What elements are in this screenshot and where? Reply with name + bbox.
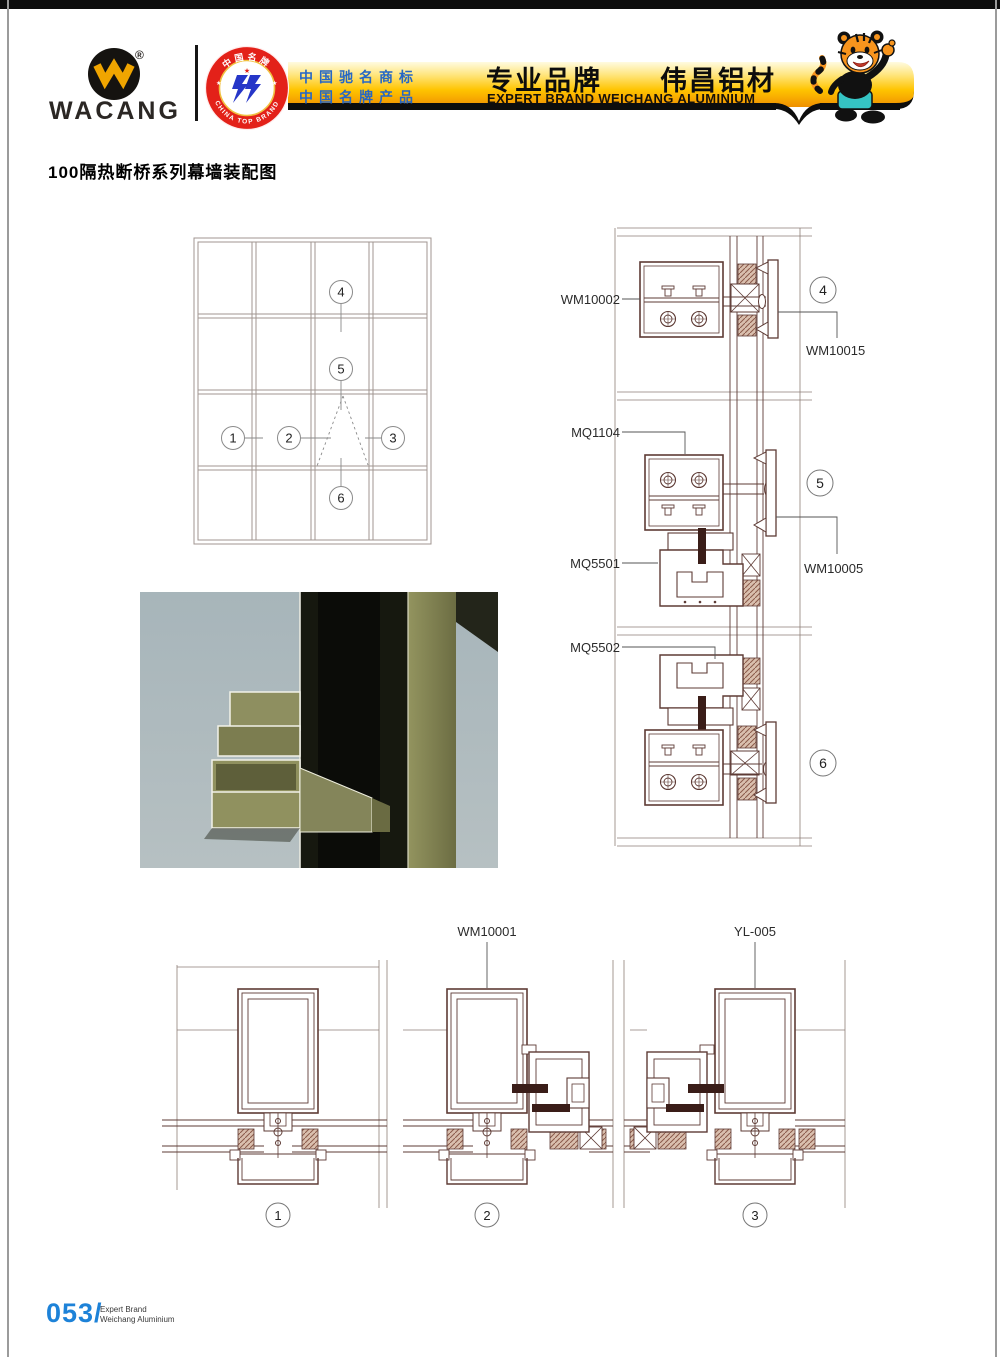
callout-detail-4: 4 bbox=[810, 277, 836, 303]
page-number: 053/ bbox=[46, 1298, 103, 1329]
trademark-lines: 中国驰名商标中国名牌产品 bbox=[299, 67, 419, 107]
label-wm10002: WM10002 bbox=[561, 292, 640, 307]
svg-text:5: 5 bbox=[337, 362, 344, 377]
brand-wordmark: WACANG bbox=[36, 97, 194, 126]
detail-section-6 bbox=[645, 655, 776, 805]
label-yl005: YL-005 bbox=[734, 924, 776, 988]
svg-text:1: 1 bbox=[229, 431, 236, 446]
footer-caption-line1: Expert Brand bbox=[100, 1305, 147, 1314]
section-details-vertical: WM10002 WM10015 4 bbox=[540, 218, 940, 863]
svg-text:YL-005: YL-005 bbox=[734, 924, 776, 939]
callout-5: 5 bbox=[330, 358, 353, 381]
callout-plan-3: 3 bbox=[743, 1203, 767, 1227]
callout-6: 6 bbox=[330, 487, 353, 510]
profile-3d-render bbox=[140, 592, 498, 868]
svg-text:★: ★ bbox=[216, 80, 221, 87]
china-top-brand-badge-icon: 中国名牌 CHINA TOP BRAND ★ ★ ★ bbox=[204, 45, 290, 131]
label-mq5501: MQ5501 bbox=[570, 556, 658, 571]
svg-text:MQ5502: MQ5502 bbox=[570, 640, 620, 655]
callout-2: 2 bbox=[278, 427, 301, 450]
detail-plan-1 bbox=[162, 960, 387, 1208]
svg-text:MQ1104: MQ1104 bbox=[571, 425, 620, 440]
svg-text:WM10015: WM10015 bbox=[806, 343, 865, 358]
svg-text:6: 6 bbox=[819, 755, 827, 771]
svg-text:★: ★ bbox=[244, 67, 250, 75]
callout-plan-2: 2 bbox=[475, 1203, 499, 1227]
plan-details-horizontal: 1 bbox=[160, 918, 880, 1243]
wacang-logo-icon bbox=[86, 46, 142, 102]
svg-text:MQ5501: MQ5501 bbox=[570, 556, 620, 571]
svg-text:5: 5 bbox=[816, 475, 824, 491]
catalog-page: ® WACANG 中国名牌 CHINA TOP BRAND ★ bbox=[0, 0, 1000, 1357]
trademark-line1: 中国驰名商标 bbox=[299, 69, 419, 85]
footer-caption-line2: Weichang Aluminium bbox=[100, 1315, 175, 1324]
elevation-callouts: 4 5 1 2 3 6 bbox=[222, 281, 405, 510]
label-wm10005: WM10005 bbox=[776, 517, 863, 576]
svg-text:4: 4 bbox=[337, 285, 344, 300]
page-title: 100隔热断桥系列幕墙装配图 bbox=[48, 158, 277, 183]
svg-text:2: 2 bbox=[483, 1208, 490, 1223]
label-wm10015: WM10015 bbox=[778, 312, 865, 358]
svg-text:6: 6 bbox=[337, 491, 344, 506]
callout-4: 4 bbox=[330, 281, 353, 304]
callout-detail-6: 6 bbox=[810, 750, 836, 776]
svg-text:WM10002: WM10002 bbox=[561, 292, 620, 307]
slogan-english: EXPERT BRAND WEICHANG ALUMINIUM bbox=[487, 91, 755, 106]
svg-text:2: 2 bbox=[285, 431, 292, 446]
detail-plan-2 bbox=[403, 960, 624, 1208]
svg-text:WM10005: WM10005 bbox=[804, 561, 863, 576]
footer-caption: Expert Brand Weichang Aluminium bbox=[100, 1305, 175, 1324]
svg-text:3: 3 bbox=[751, 1208, 758, 1223]
callout-plan-1: 1 bbox=[266, 1203, 290, 1227]
left-page-edge bbox=[7, 0, 9, 1357]
elevation-diagram: 4 5 1 2 3 6 bbox=[185, 228, 447, 560]
svg-text:3: 3 bbox=[389, 431, 396, 446]
label-wm10001: WM10001 bbox=[457, 924, 516, 988]
top-black-bar bbox=[0, 0, 1000, 9]
callout-1: 1 bbox=[222, 427, 245, 450]
registered-mark: ® bbox=[135, 48, 144, 62]
detail-plan-3 bbox=[624, 960, 845, 1208]
tiger-mascot-icon bbox=[806, 27, 911, 125]
label-mq1104: MQ1104 bbox=[571, 425, 685, 454]
svg-text:★: ★ bbox=[272, 80, 277, 87]
header-divider bbox=[195, 45, 198, 121]
callout-3: 3 bbox=[382, 427, 405, 450]
callout-detail-5: 5 bbox=[807, 470, 833, 496]
svg-text:4: 4 bbox=[819, 282, 827, 298]
svg-text:WM10001: WM10001 bbox=[457, 924, 516, 939]
right-page-edge bbox=[995, 0, 997, 1357]
trademark-line2: 中国名牌产品 bbox=[299, 89, 419, 105]
detail-section-5 bbox=[645, 450, 776, 606]
svg-text:1: 1 bbox=[274, 1208, 281, 1223]
